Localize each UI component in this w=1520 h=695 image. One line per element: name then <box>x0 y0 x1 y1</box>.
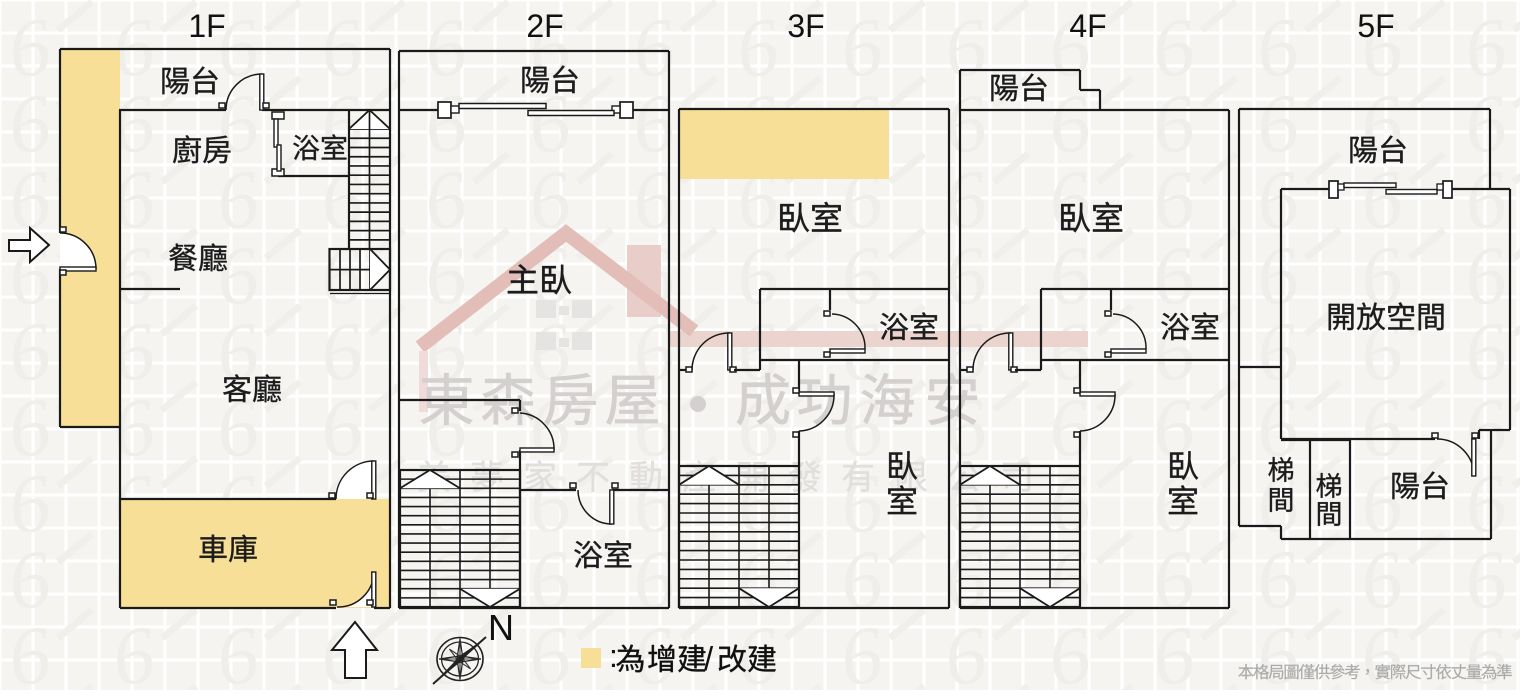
svg-text:1F: 1F <box>188 8 225 44</box>
svg-text:N: N <box>488 607 514 648</box>
svg-text:4F: 4F <box>1069 8 1106 44</box>
svg-text:2F: 2F <box>526 8 563 44</box>
svg-text:/: / <box>704 640 714 677</box>
svg-text:3F: 3F <box>787 8 824 44</box>
svg-text::: : <box>609 638 618 674</box>
svg-text:5F: 5F <box>1357 8 1394 44</box>
